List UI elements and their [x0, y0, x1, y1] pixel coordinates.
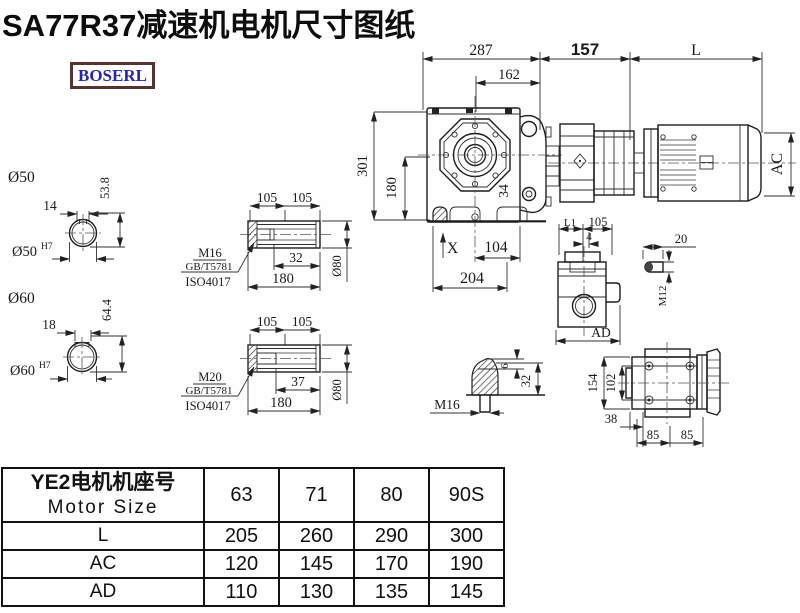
label-M16-plug: M16 [434, 397, 460, 412]
cell-L-80: 290 [354, 522, 429, 550]
label-s1-iso: ISO4017 [185, 275, 230, 289]
table-header-row: YE2电机机座号 Motor Size 63 71 80 90S [2, 468, 504, 522]
brand-logo-text: BOSERL [78, 66, 147, 85]
cell-AC-63: 120 [204, 550, 279, 578]
dim-18: 18 [42, 317, 56, 332]
dim-102: 102 [604, 374, 618, 393]
label-h7a: H7 [41, 242, 53, 252]
hollow-shaft-m20: 105 105 37 180 Ø80 M20 GB/T5781 ISO4017 [181, 314, 352, 415]
dim-s1-32: 32 [289, 250, 303, 265]
gearbox-front-view: 34 [418, 96, 562, 262]
label-dia50-h7: Ø50 [12, 244, 37, 260]
cell-L-63: 205 [204, 522, 279, 550]
dim-s2-105b: 105 [292, 314, 313, 329]
page-title: SA77R37减速机电机尺寸图纸 [2, 0, 415, 45]
dim-AC: AC [769, 153, 786, 175]
motor-assembly: AC [548, 124, 796, 202]
dim-s2-d80: Ø80 [330, 379, 344, 401]
header-zh: YE2电机机座号 [3, 470, 203, 496]
cell-AC-71: 145 [279, 550, 354, 578]
cell-AD-63: 110 [204, 578, 279, 606]
col-63: 63 [204, 468, 279, 522]
dim-s2-180: 180 [270, 395, 292, 411]
dim-s2-37: 37 [291, 374, 305, 389]
dim-64-4: 64.4 [100, 298, 114, 321]
gearbox-side-view: L1 105 4 AD [556, 215, 620, 345]
row-label-AD: AD [2, 578, 204, 606]
cell-AC-80: 170 [354, 550, 429, 578]
gearbox-top-view: 154 102 38 85 85 [586, 342, 730, 447]
col-90s: 90S [429, 468, 504, 522]
label-dia60: Ø60 [8, 290, 35, 307]
dim-s1-d80: Ø80 [330, 255, 344, 277]
dim-4: 4 [586, 231, 592, 243]
dim-L: L [691, 42, 701, 59]
dim-85a: 85 [647, 428, 660, 442]
dim-AD: AD [591, 325, 611, 340]
brand-logo: BOSERL [70, 62, 155, 89]
dim-M12: M12 [657, 286, 669, 307]
motor-fins [660, 140, 696, 185]
dim-L1: L1 [564, 217, 576, 229]
dim-301: 301 [355, 155, 371, 177]
dim-157: 157 [571, 40, 599, 59]
dim-287: 287 [469, 42, 493, 59]
dim-180: 180 [384, 177, 400, 199]
label-h7b: H7 [39, 361, 51, 371]
bottom-dimensions: X 104 204 [433, 226, 520, 292]
breather-plug-detail: M16 6 32 [430, 349, 545, 413]
dim-20: 20 [675, 232, 688, 246]
cell-L-71: 260 [279, 522, 354, 550]
label-dia60-h7: Ø60 [10, 363, 35, 379]
dim-s1-180: 180 [272, 271, 294, 287]
dim-104: 104 [484, 239, 508, 256]
left-dimensions: 301 180 [355, 112, 430, 220]
dimension-table: YE2电机机座号 Motor Size 63 71 80 90S L 205 2… [1, 467, 505, 607]
dim-85b: 85 [681, 428, 694, 442]
dim-s1-105b: 105 [292, 190, 313, 205]
col-71: 71 [279, 468, 354, 522]
dim-34: 34 [496, 184, 511, 198]
dim-6: 6 [499, 363, 511, 369]
label-dia50: Ø50 [8, 169, 35, 186]
label-s1-m16: M16 [198, 246, 222, 260]
cell-AC-90s: 190 [429, 550, 504, 578]
header-motor-size-cell: YE2电机机座号 Motor Size [2, 468, 204, 522]
col-80: 80 [354, 468, 429, 522]
key-detail: 20 M12 [643, 232, 696, 306]
hollow-shaft-m16: 105 105 32 180 Ø80 M16 GB/T5781 ISO4017 [181, 190, 352, 291]
dim-14: 14 [43, 198, 57, 213]
cell-AD-90s: 145 [429, 578, 504, 606]
dim-53-8: 53.8 [98, 177, 112, 199]
dim-X: X [447, 240, 458, 257]
cell-L-90s: 300 [429, 522, 504, 550]
dim-105-side: 105 [589, 215, 608, 229]
table-row-AD: AD 110 130 135 145 [2, 578, 504, 606]
label-s2-iso: ISO4017 [185, 399, 230, 413]
drawing-sheet: 287 162 157 L 301 180 [0, 0, 800, 613]
header-en: Motor Size [3, 496, 203, 520]
dim-162: 162 [498, 67, 520, 83]
cell-AD-71: 130 [279, 578, 354, 606]
row-label-AC: AC [2, 550, 204, 578]
shaft-section-60: Ø60 18 64.4 Ø60 H7 [8, 290, 127, 382]
label-s2-m20: M20 [198, 370, 222, 384]
label-s2-gb: GB/T5781 [185, 385, 232, 397]
dim-38: 38 [605, 412, 618, 426]
table-row-L: L 205 260 290 300 [2, 522, 504, 550]
row-label-L: L [2, 522, 204, 550]
dim-s2-105a: 105 [257, 314, 278, 329]
dim-32-plug: 32 [519, 375, 533, 388]
label-s1-gb: GB/T5781 [185, 261, 232, 273]
dim-s1-105a: 105 [257, 190, 278, 205]
dim-204: 204 [460, 270, 484, 287]
dim-154: 154 [586, 373, 600, 393]
shaft-section-50: Ø50 14 53.8 Ø50 H7 [8, 169, 125, 262]
table-row-AC: AC 120 145 170 190 [2, 550, 504, 578]
cell-AD-80: 135 [354, 578, 429, 606]
